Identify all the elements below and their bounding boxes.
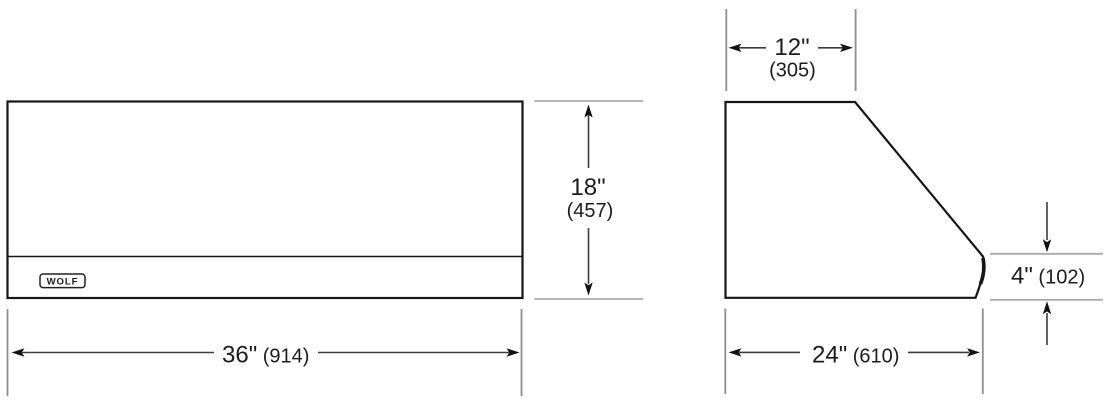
svg-text:18": 18"	[570, 174, 605, 201]
svg-text:12": 12"	[774, 34, 809, 61]
svg-text:(457): (457)	[567, 200, 614, 222]
svg-text:36" (914): 36" (914)	[222, 342, 309, 369]
svg-text:WOLF: WOLF	[47, 277, 79, 288]
svg-text:24" (610): 24" (610)	[812, 342, 899, 369]
svg-text:(305): (305)	[769, 60, 816, 82]
svg-text:4" (102): 4" (102)	[1011, 263, 1085, 290]
